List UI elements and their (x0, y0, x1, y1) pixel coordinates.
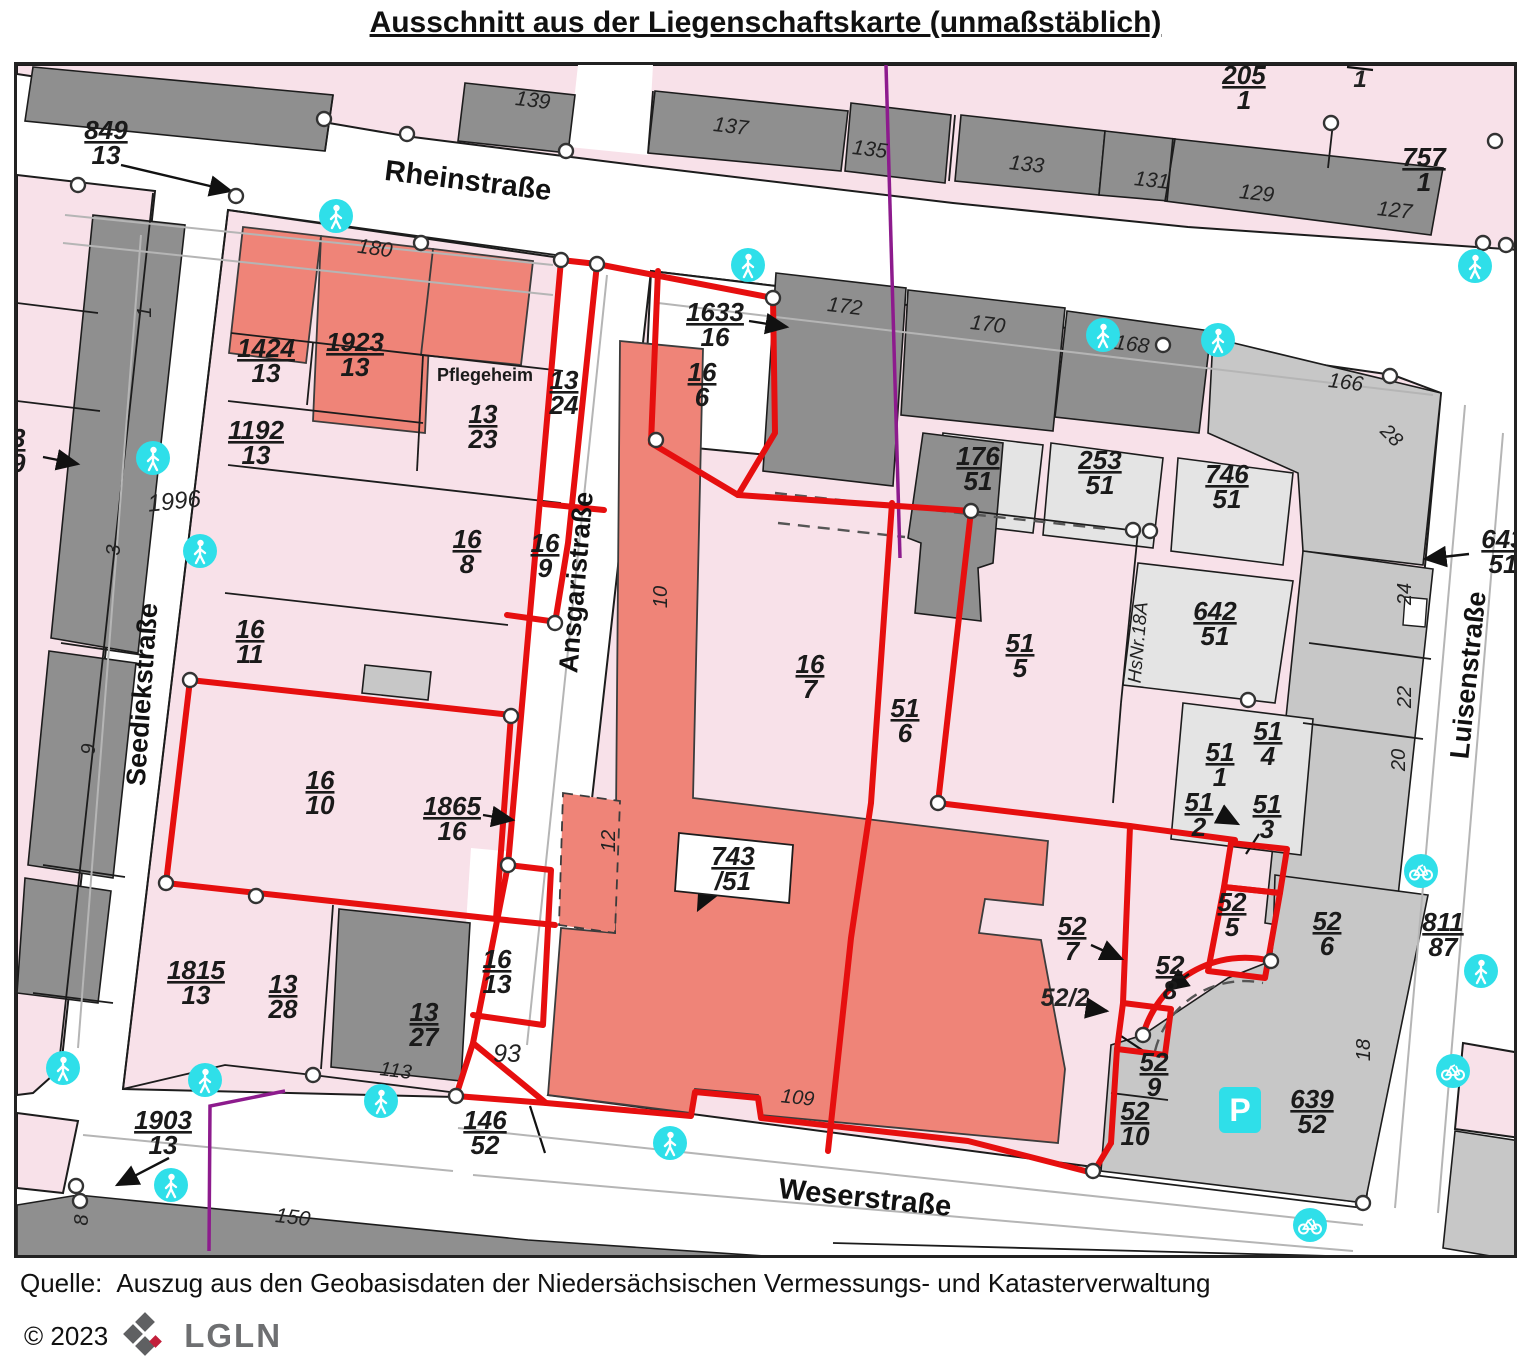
source-text: Auszug aus den Geobasisdaten der Nieders… (116, 1268, 1210, 1298)
house-number-3: 3 (103, 544, 125, 555)
house-number-127: 127 (1376, 197, 1415, 224)
house-number-129: 129 (1238, 180, 1276, 207)
parcel-label-52-10: 5210 (1121, 1096, 1150, 1151)
svg-text:13: 13 (182, 980, 211, 1010)
svg-text:1: 1 (1237, 85, 1251, 115)
house-number-166: 166 (1327, 369, 1365, 396)
svg-text:13: 13 (242, 440, 271, 470)
source-label: Quelle: (20, 1268, 102, 1298)
svg-text:51: 51 (1086, 470, 1115, 500)
pedestrian-icon (1458, 249, 1492, 283)
house-number-20: 20 (1388, 749, 1410, 772)
pedestrian-icon (136, 441, 170, 475)
pedestrian-icon (183, 534, 217, 568)
house-number-135: 135 (851, 136, 889, 163)
pedestrian-icon (364, 1084, 398, 1118)
copyright-row: © 2023 LGLN (24, 1312, 282, 1360)
svg-text:8: 8 (460, 549, 475, 579)
house-number-113: 113 (379, 1058, 413, 1084)
page-title: Ausschnitt aus der Liegenschaftskarte (u… (0, 6, 1531, 40)
lgln-logo-icon (122, 1312, 170, 1360)
house-number-1: 1 (1353, 66, 1366, 93)
house-number-133: 133 (1008, 151, 1046, 178)
parking-icon: P (1219, 1087, 1261, 1133)
page: Ausschnitt aus der Liegenschaftskarte (u… (0, 0, 1531, 1368)
svg-text:10: 10 (306, 790, 335, 820)
house-number-52/2: 52/2 (1041, 984, 1090, 1012)
svg-text:4: 4 (1260, 741, 1276, 771)
pedestrian-icon (731, 248, 765, 282)
parcel-label-16-13: 1613 (483, 944, 512, 999)
house-number-170: 170 (969, 311, 1007, 338)
house-number-18: 18 (1353, 1039, 1375, 1061)
house-number-180: 180 (356, 235, 394, 263)
svg-text:2: 2 (1191, 812, 1207, 842)
copyright-text: © 2023 (24, 1321, 108, 1352)
bicycle-icon (1404, 854, 1438, 888)
lgln-logo-text: LGLN (184, 1317, 282, 1355)
svg-text:6: 6 (1320, 931, 1335, 961)
parcel-label-1903-13: 190313 (134, 1105, 192, 1160)
house-number-131: 131 (1133, 167, 1170, 194)
source-line: Quelle:Auszug aus den Geobasisdaten der … (20, 1268, 1210, 1299)
svg-text:6: 6 (898, 718, 913, 748)
house-number-172: 172 (826, 293, 864, 320)
svg-text:/51: /51 (714, 866, 751, 896)
street-label-luisenstrae: Luisenstraße (1444, 590, 1491, 760)
svg-text:52: 52 (471, 1130, 500, 1160)
svg-text:16: 16 (701, 322, 730, 352)
pedestrian-icon (188, 1063, 222, 1097)
svg-text:9: 9 (538, 553, 553, 583)
parcel-label-13-28: 1328 (268, 969, 298, 1024)
svg-text:P: P (1229, 1092, 1250, 1128)
house-number-8: 8 (71, 1214, 93, 1225)
svg-text:13: 13 (92, 140, 121, 170)
svg-text:13: 13 (149, 1130, 178, 1160)
house-number-137: 137 (712, 113, 751, 140)
house-number-9: 9 (78, 743, 100, 754)
pedestrian-icon (154, 1168, 188, 1202)
svg-text:3: 3 (1260, 814, 1275, 844)
parcel-label-849-13: 84913 (84, 115, 128, 170)
parcel-label-146-52: 14652 (463, 1105, 507, 1160)
svg-text:23: 23 (468, 424, 498, 454)
svg-text:11: 11 (237, 639, 264, 669)
pedestrian-icon (653, 1126, 687, 1160)
bicycle-icon (1293, 1208, 1327, 1242)
parcel-label-13-19: 1319 (17, 423, 26, 478)
street-label-rheinstrae: Rheinstraße (383, 155, 553, 207)
svg-text:51: 51 (1213, 484, 1242, 514)
house-number-12: 12 (598, 830, 620, 852)
svg-text:1: 1 (1417, 167, 1431, 197)
svg-text:19: 19 (17, 448, 26, 478)
pedestrian-icon (319, 199, 353, 233)
bicycle-icon (1436, 1054, 1470, 1088)
svg-text:5: 5 (1225, 912, 1240, 942)
parcel-label-16-10: 1610 (306, 765, 335, 820)
house-number-150: 150 (274, 1204, 312, 1231)
cadastral-map: 8491320517571142413192313132416331616611… (14, 62, 1517, 1258)
parcel-label-13-23: 1323 (468, 399, 498, 454)
svg-text:13: 13 (341, 352, 370, 382)
street-label-weserstrae: Weserstraße (777, 1173, 953, 1223)
house-number-139: 139 (514, 87, 552, 114)
svg-text:6: 6 (695, 382, 710, 412)
house-number-1: 1 (134, 306, 156, 317)
parcel-label-743-51: 743/51 (711, 841, 755, 896)
house-number-1996: 1996 (146, 485, 203, 518)
svg-text:1: 1 (1213, 762, 1227, 792)
svg-text:28: 28 (268, 994, 298, 1024)
parcel-label-16-11: 1611 (236, 614, 265, 669)
pedestrian-icon (1086, 318, 1120, 352)
svg-text:5: 5 (1013, 653, 1028, 683)
svg-text:51: 51 (964, 466, 993, 496)
svg-text:87: 87 (1429, 932, 1459, 962)
svg-text:10: 10 (1121, 1121, 1150, 1151)
house-number-24: 24 (1394, 583, 1416, 606)
house-number-22: 22 (1394, 686, 1416, 709)
pedestrian-icon (1201, 323, 1235, 357)
svg-text:51: 51 (1201, 621, 1230, 651)
svg-text:13: 13 (483, 969, 512, 999)
svg-text:52: 52 (1298, 1109, 1327, 1139)
svg-text:7: 7 (1065, 936, 1081, 966)
parcel-label-643-51: 64351 (1481, 524, 1514, 579)
house-number-93: 93 (493, 1040, 521, 1068)
house-number-10: 10 (650, 586, 672, 608)
svg-text:13: 13 (252, 358, 281, 388)
svg-text:8: 8 (1163, 975, 1178, 1005)
parcel-label-13-27: 1327 (409, 997, 440, 1052)
pedestrian-icon (1464, 954, 1498, 988)
house-number-Pflegeheim: Pflegeheim (437, 365, 533, 385)
parcel-label-13-24: 1324 (549, 365, 579, 420)
parcel-label-811-87: 81187 (1422, 907, 1463, 962)
svg-text:27: 27 (409, 1022, 440, 1052)
street-label-ansgaristrae: Ansgaristraße (553, 490, 599, 674)
svg-text:24: 24 (549, 390, 579, 420)
svg-text:16: 16 (438, 816, 467, 846)
svg-text:51: 51 (1489, 549, 1514, 579)
house-number-109: 109 (780, 1085, 815, 1110)
svg-text:7: 7 (803, 674, 819, 704)
pedestrian-icon (46, 1051, 80, 1085)
